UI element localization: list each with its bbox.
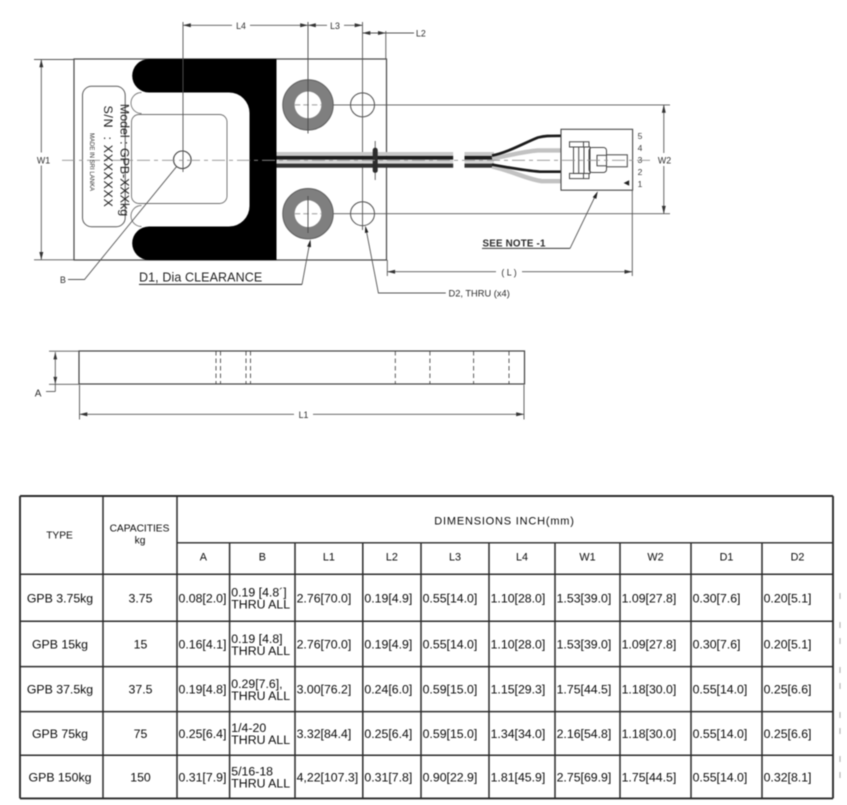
svg-text:1.10[28.0]: 1.10[28.0]	[491, 638, 546, 652]
svg-text:2.76[70.0]: 2.76[70.0]	[297, 591, 352, 605]
svg-text:B: B	[60, 275, 66, 285]
svg-text:W2: W2	[658, 156, 671, 166]
svg-text:GPB 3.75kg: GPB 3.75kg	[27, 591, 93, 605]
svg-text:0.55[14.0]: 0.55[14.0]	[693, 770, 748, 784]
svg-text:L4: L4	[516, 552, 528, 564]
svg-text:0.31[7.8]: 0.31[7.8]	[364, 770, 412, 784]
svg-text:0.31[7.9]: 0.31[7.9]	[179, 770, 227, 784]
svg-text:150: 150	[130, 770, 151, 784]
svg-text:L2: L2	[386, 552, 398, 564]
svg-text:3.00[76.2]: 3.00[76.2]	[297, 683, 352, 697]
svg-text:THRU ALL: THRU ALL	[231, 598, 290, 612]
svg-text:0.19[4.8]: 0.19[4.8]	[179, 683, 227, 697]
svg-text:THRU ALL: THRU ALL	[231, 733, 290, 747]
svg-text:L3: L3	[330, 21, 340, 31]
svg-text:0.90[22.9]: 0.90[22.9]	[423, 770, 478, 784]
svg-text:A: A	[200, 552, 208, 564]
svg-text:THRU ALL: THRU ALL	[231, 777, 290, 791]
svg-text:75: 75	[134, 727, 148, 741]
svg-text:L2: L2	[416, 29, 426, 39]
svg-text:A: A	[35, 389, 42, 400]
svg-text:Model : GPB-XXXkg: Model : GPB-XXXkg	[117, 104, 131, 216]
svg-text:0.24[6.0]: 0.24[6.0]	[364, 683, 412, 697]
svg-text:kg: kg	[135, 536, 146, 547]
svg-text:0.25[6.6]: 0.25[6.6]	[764, 727, 812, 741]
svg-text:2: 2	[638, 167, 643, 177]
svg-text:GPB 15kg: GPB 15kg	[32, 638, 88, 652]
svg-text:L1: L1	[323, 552, 335, 564]
svg-text:4,22[107.3]: 4,22[107.3]	[297, 770, 359, 784]
svg-text:1.34[34.0]: 1.34[34.0]	[491, 727, 546, 741]
svg-text:D2: D2	[791, 552, 805, 564]
svg-text:CAPACITIES: CAPACITIES	[110, 524, 170, 535]
svg-text:W1: W1	[37, 156, 50, 166]
svg-text:1: 1	[638, 179, 643, 189]
svg-text:L3: L3	[449, 552, 461, 564]
svg-text:0.20[5.1]: 0.20[5.1]	[764, 591, 812, 605]
svg-text:D2, THRU (x4): D2, THRU (x4)	[449, 288, 510, 298]
svg-text:1.09[27.8]: 1.09[27.8]	[622, 591, 677, 605]
svg-text:3.32[84.4]: 3.32[84.4]	[297, 727, 352, 741]
svg-text:L4: L4	[236, 21, 246, 31]
svg-text:W2: W2	[647, 552, 663, 564]
svg-text:2.16[54.8]: 2.16[54.8]	[557, 727, 612, 741]
svg-text:0.30[7.6]: 0.30[7.6]	[693, 591, 741, 605]
svg-text:GPB 75kg: GPB 75kg	[32, 727, 88, 741]
svg-text:3.75: 3.75	[129, 591, 153, 605]
svg-text:0.25[6.4]: 0.25[6.4]	[179, 727, 227, 741]
svg-text:( L ): ( L )	[501, 267, 516, 277]
svg-text:1.75[44.5]: 1.75[44.5]	[557, 683, 612, 697]
svg-text:D1, Dia CLEARANCE: D1, Dia CLEARANCE	[139, 271, 262, 285]
svg-text:L1: L1	[299, 410, 309, 420]
svg-text:1.81[45.9]: 1.81[45.9]	[491, 770, 546, 784]
svg-text:0.16[4.1]: 0.16[4.1]	[179, 638, 227, 652]
svg-text:0.25[6.4]: 0.25[6.4]	[364, 727, 412, 741]
svg-text:0.19[4.9]: 0.19[4.9]	[364, 638, 412, 652]
svg-text:MADE IN SRI LANKA: MADE IN SRI LANKA	[88, 133, 94, 191]
svg-text:GPB 150kg: GPB 150kg	[29, 770, 92, 784]
svg-text:5: 5	[638, 131, 643, 141]
svg-text:DIMENSIONS INCH(mm): DIMENSIONS INCH(mm)	[434, 516, 574, 528]
svg-text:THRU ALL: THRU ALL	[231, 644, 290, 658]
svg-text:4: 4	[638, 143, 643, 153]
svg-text:SEE NOTE -1: SEE NOTE -1	[483, 238, 547, 249]
svg-text:0.25[6.6]: 0.25[6.6]	[764, 683, 812, 697]
svg-text:15: 15	[134, 638, 148, 652]
svg-text:B: B	[259, 552, 266, 564]
svg-text:TYPE: TYPE	[46, 531, 73, 542]
svg-text:1.53[39.0]: 1.53[39.0]	[557, 638, 612, 652]
svg-text:37.5: 37.5	[129, 683, 153, 697]
svg-text:0.19[4.9]: 0.19[4.9]	[364, 591, 412, 605]
svg-text:GPB 37.5kg: GPB 37.5kg	[27, 683, 93, 697]
svg-text:S/N : XXXXXXX: S/N : XXXXXXX	[101, 105, 115, 207]
svg-text:0.55[14.0]: 0.55[14.0]	[693, 683, 748, 697]
svg-text:1.09[27.8]: 1.09[27.8]	[622, 638, 677, 652]
svg-text:0.55[14.0]: 0.55[14.0]	[423, 591, 478, 605]
svg-text:0.32[8.1]: 0.32[8.1]	[764, 770, 812, 784]
svg-text:1.18[30.0]: 1.18[30.0]	[622, 683, 677, 697]
svg-text:1.18[30.0]: 1.18[30.0]	[622, 727, 677, 741]
svg-text:1.75[44.5]: 1.75[44.5]	[622, 770, 677, 784]
svg-text:2.76[70.0]: 2.76[70.0]	[297, 638, 352, 652]
svg-text:W1: W1	[579, 552, 595, 564]
svg-text:0.55[14.0]: 0.55[14.0]	[693, 727, 748, 741]
svg-text:0.08[2.0]: 0.08[2.0]	[179, 591, 227, 605]
svg-text:0.20[5.1]: 0.20[5.1]	[764, 638, 812, 652]
svg-text:0.30[7.6]: 0.30[7.6]	[693, 638, 741, 652]
svg-text:1.15[29.3]: 1.15[29.3]	[491, 683, 546, 697]
svg-text:1.10[28.0]: 1.10[28.0]	[491, 591, 546, 605]
svg-text:0.55[14.0]: 0.55[14.0]	[423, 638, 478, 652]
svg-text:2.75[69.9]: 2.75[69.9]	[557, 770, 612, 784]
svg-text:0.59[15.0]: 0.59[15.0]	[423, 727, 478, 741]
svg-text:D1: D1	[720, 552, 734, 564]
svg-text:0.59[15.0]: 0.59[15.0]	[423, 683, 478, 697]
svg-text:THRU ALL: THRU ALL	[231, 689, 290, 703]
svg-text:1.53[39.0]: 1.53[39.0]	[557, 591, 612, 605]
